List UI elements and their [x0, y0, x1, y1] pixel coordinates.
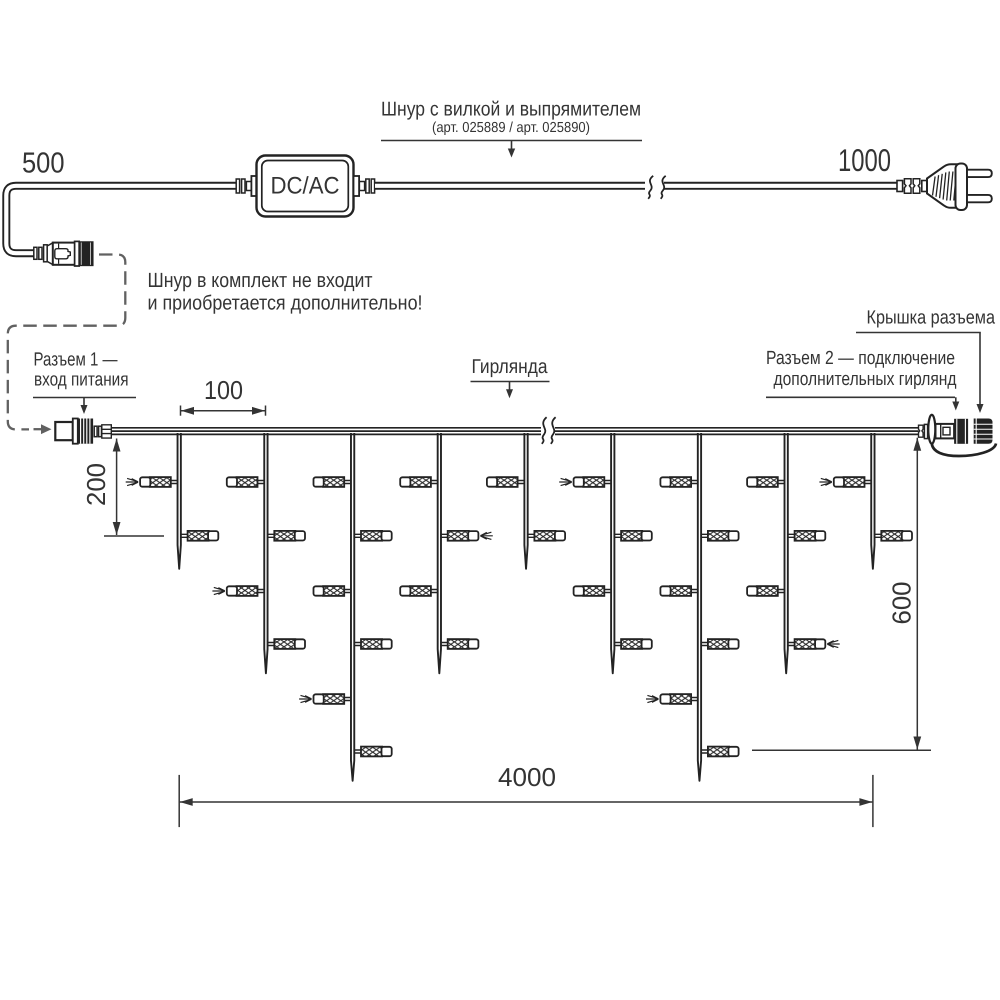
svg-text:200: 200: [81, 463, 111, 506]
svg-text:Разъем 1 —: Разъем 1 —: [34, 350, 118, 371]
svg-text:вход питания: вход питания: [34, 370, 129, 391]
svg-text:500: 500: [22, 148, 65, 180]
svg-text:и приобретается дополнительно!: и приобретается дополнительно!: [148, 292, 423, 315]
svg-text:дополнительных гирлянд: дополнительных гирлянд: [774, 369, 957, 390]
svg-text:Разъем 2 — подключение: Разъем 2 — подключение: [766, 348, 955, 369]
svg-text:600: 600: [886, 582, 916, 625]
svg-text:100: 100: [204, 375, 243, 405]
svg-text:4000: 4000: [498, 762, 556, 792]
svg-text:Гирлянда: Гирлянда: [472, 356, 549, 378]
svg-text:Шнур с вилкой и выпрямителем: Шнур с вилкой и выпрямителем: [381, 99, 641, 121]
svg-text:Шнур в комплект не входит: Шнур в комплект не входит: [148, 269, 374, 292]
svg-text:1000: 1000: [838, 142, 891, 178]
svg-text:Крышка разъема: Крышка разъема: [867, 308, 996, 329]
svg-text:DC/AC: DC/AC: [271, 173, 340, 200]
svg-text:(арт. 025889 / арт. 025890): (арт. 025889 / арт. 025890): [432, 120, 590, 136]
